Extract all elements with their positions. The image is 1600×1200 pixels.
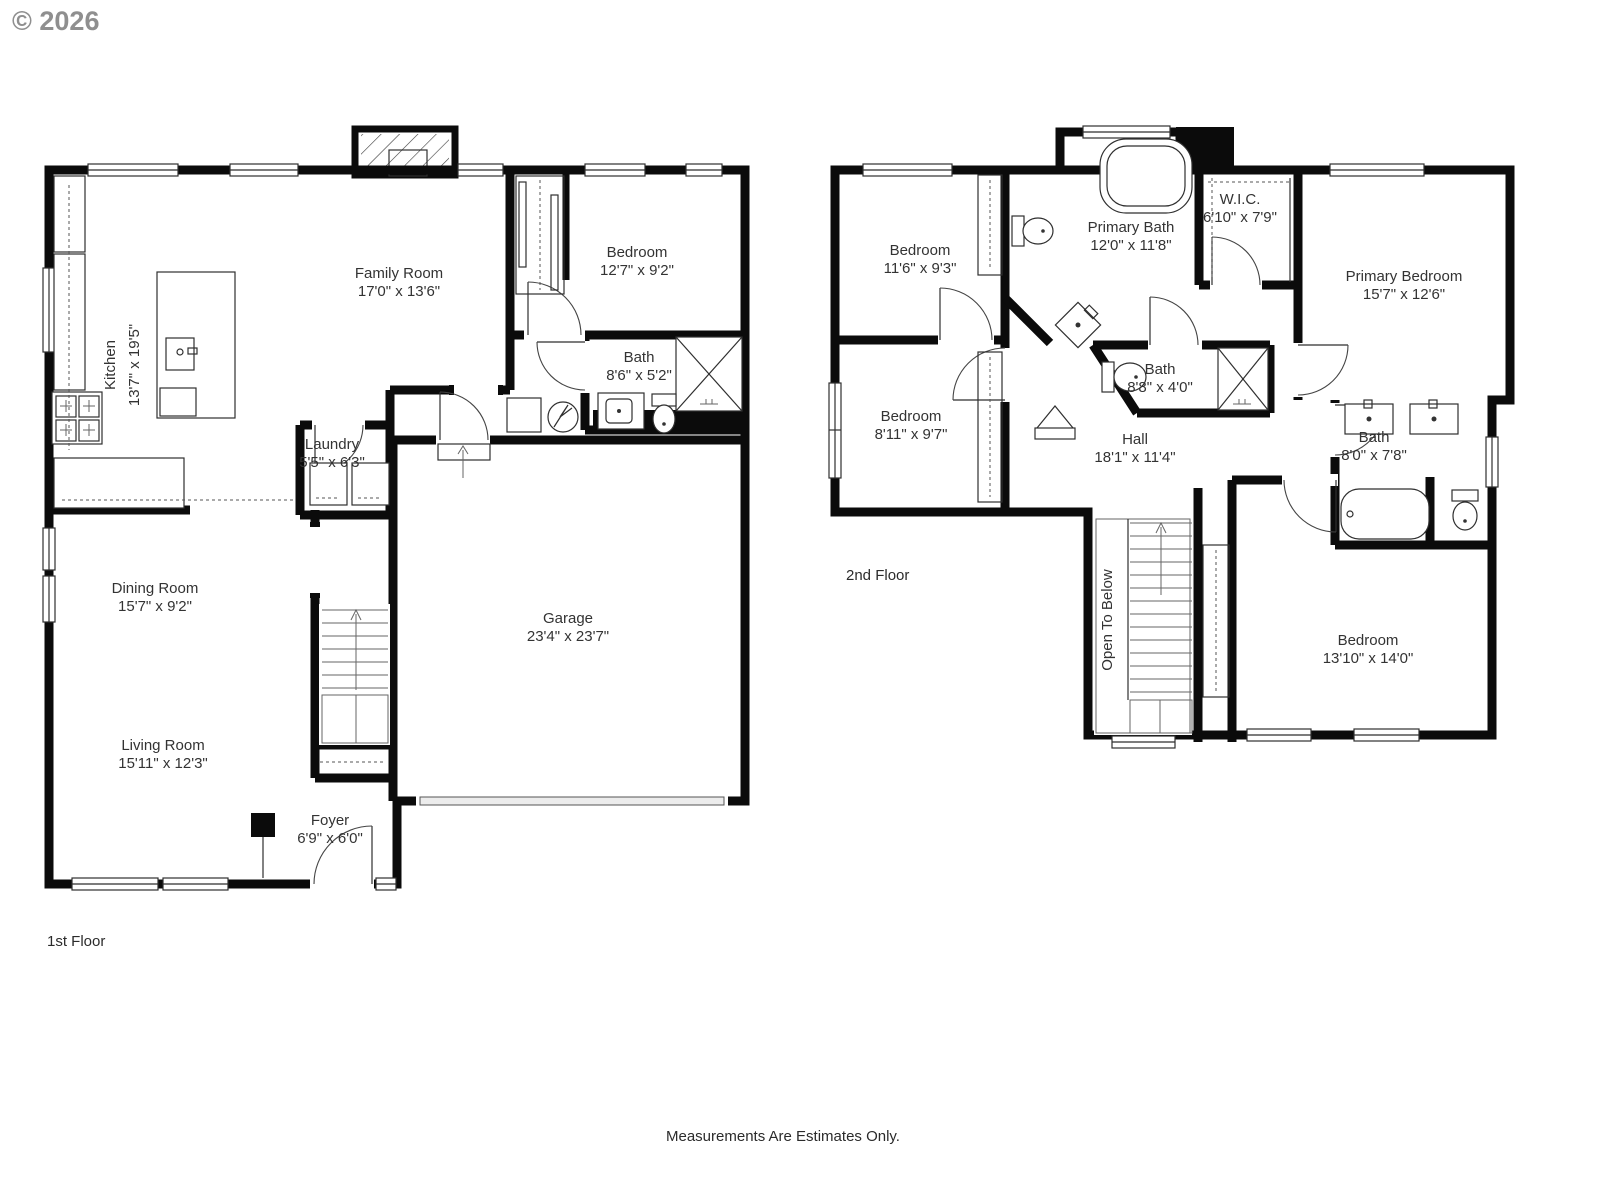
primary-toilet xyxy=(1012,216,1053,246)
porch-post xyxy=(251,813,275,837)
window xyxy=(88,164,178,176)
floor2-plan: Bedroom 11'6" x 9'3" Primary Bath 12'0" … xyxy=(829,126,1510,748)
room-label-garage-name: Garage xyxy=(543,610,593,627)
window xyxy=(43,268,55,352)
floor1-stairs xyxy=(319,604,390,762)
window xyxy=(72,878,158,890)
room-label-bedroom3-name: Bedroom xyxy=(1338,632,1399,649)
bath3-toilet xyxy=(1452,490,1478,530)
window xyxy=(829,383,841,478)
floor1-plan: Kitchen 13'7" x 19'5" Family Room 17'0" … xyxy=(43,129,745,890)
window xyxy=(163,878,228,890)
bath1-toilet xyxy=(652,394,676,433)
room-label-family-dims: 17'0" x 13'6" xyxy=(358,283,440,300)
floorplan-drawing: Kitchen 13'7" x 19'5" Family Room 17'0" … xyxy=(0,0,1600,1200)
room-label-dining-dims: 15'7" x 9'2" xyxy=(118,598,192,615)
footer-disclaimer: Measurements Are Estimates Only. xyxy=(666,1128,900,1145)
bath3-sink-2 xyxy=(1410,400,1458,434)
bath3-tub xyxy=(1341,489,1429,539)
room-label-wic-dims: 6'10" x 7'9" xyxy=(1203,209,1277,226)
room-label-bedroom3-dims: 13'10" x 14'0" xyxy=(1323,650,1414,667)
room-label-foyer-dims: 6'9" x 6'0" xyxy=(297,830,363,847)
floor2-label: 2nd Floor xyxy=(846,567,909,584)
room-label-foyer-name: Foyer xyxy=(311,812,349,829)
window xyxy=(43,576,55,622)
room-label-laundry-name: Laundry xyxy=(305,436,360,453)
water-heater xyxy=(548,402,578,432)
room-label-bedroom2-dims: 8'11" x 9'7" xyxy=(875,426,948,443)
window xyxy=(585,164,645,176)
primary-vanity xyxy=(1055,298,1104,347)
room-label-hall-name: Hall xyxy=(1122,431,1148,448)
kitchen-fixtures xyxy=(52,176,295,508)
room-label-living-name: Living Room xyxy=(121,737,204,754)
room-label-primarybath-dims: 12'0" x 11'8" xyxy=(1090,237,1171,254)
window xyxy=(1354,729,1419,741)
copyright-text: © 2026 xyxy=(12,6,99,36)
primary-tub xyxy=(1100,139,1192,213)
window xyxy=(1112,736,1175,748)
kitchen-island xyxy=(157,272,235,418)
bath1-sink xyxy=(598,393,644,429)
room-label-bath3-name: Bath xyxy=(1359,429,1390,446)
room-label-hall-dims: 18'1" x 11'4" xyxy=(1094,449,1175,466)
room-label-family-name: Family Room xyxy=(355,265,443,282)
room-label-living-dims: 15'11" x 12'3" xyxy=(118,755,208,772)
open-to-below-label: Open To Below xyxy=(1099,569,1116,671)
window xyxy=(686,164,722,176)
cooktop xyxy=(52,392,102,444)
room-label-bath3-dims: 8'0" x 7'8" xyxy=(1341,447,1407,464)
shower xyxy=(676,337,742,411)
window xyxy=(1247,729,1311,741)
room-label-bath2-dims: 8'8" x 4'0" xyxy=(1127,379,1193,396)
room-label-primarybed-name: Primary Bedroom xyxy=(1346,268,1463,285)
bath3-fixtures xyxy=(1341,400,1478,539)
window xyxy=(1083,126,1170,138)
room-label-primarybed-dims: 15'7" x 12'6" xyxy=(1363,286,1445,303)
room-label-wic-name: W.I.C. xyxy=(1220,191,1261,208)
room-label-primarybath-name: Primary Bath xyxy=(1088,219,1175,236)
room-label-bath-name: Bath xyxy=(624,349,655,366)
room-label-bedroom1-dims: 11'6" x 9'3" xyxy=(884,260,957,277)
window xyxy=(230,164,298,176)
window xyxy=(376,878,396,890)
bedroom1-closet xyxy=(516,176,564,294)
bath2-shower xyxy=(1218,348,1268,410)
room-label-bedroom-name: Bedroom xyxy=(607,244,668,261)
kitchen-counter xyxy=(54,254,85,390)
room-label-bedroom2-name: Bedroom xyxy=(881,408,942,425)
garage-step xyxy=(438,444,490,460)
room-label-bath-dims: 8'6" x 5'2" xyxy=(606,367,672,384)
room-label-kitchen-dims: 13'7" x 19'5" xyxy=(126,324,143,406)
room-label-kitchen-name: Kitchen xyxy=(102,340,119,390)
mechanical xyxy=(507,398,578,432)
room-label-bath2-name: Bath xyxy=(1145,361,1176,378)
linen-closet xyxy=(1035,406,1075,439)
window xyxy=(43,528,55,570)
room-label-bedroom1-name: Bedroom xyxy=(890,242,951,259)
floorplan-page: Kitchen 13'7" x 19'5" Family Room 17'0" … xyxy=(0,0,1600,1200)
room-label-garage-dims: 23'4" x 23'7" xyxy=(527,628,609,645)
floor1-label: 1st Floor xyxy=(47,933,105,950)
room-label-bedroom-dims: 12'7" x 9'2" xyxy=(600,262,674,279)
appliance xyxy=(507,398,541,432)
room-label-laundry-dims: 5'5" x 6'3" xyxy=(299,454,365,471)
garage-door xyxy=(416,795,728,807)
window xyxy=(863,164,952,176)
window xyxy=(1486,437,1498,487)
window xyxy=(1330,164,1424,176)
window xyxy=(458,164,503,176)
room-label-dining-name: Dining Room xyxy=(112,580,199,597)
